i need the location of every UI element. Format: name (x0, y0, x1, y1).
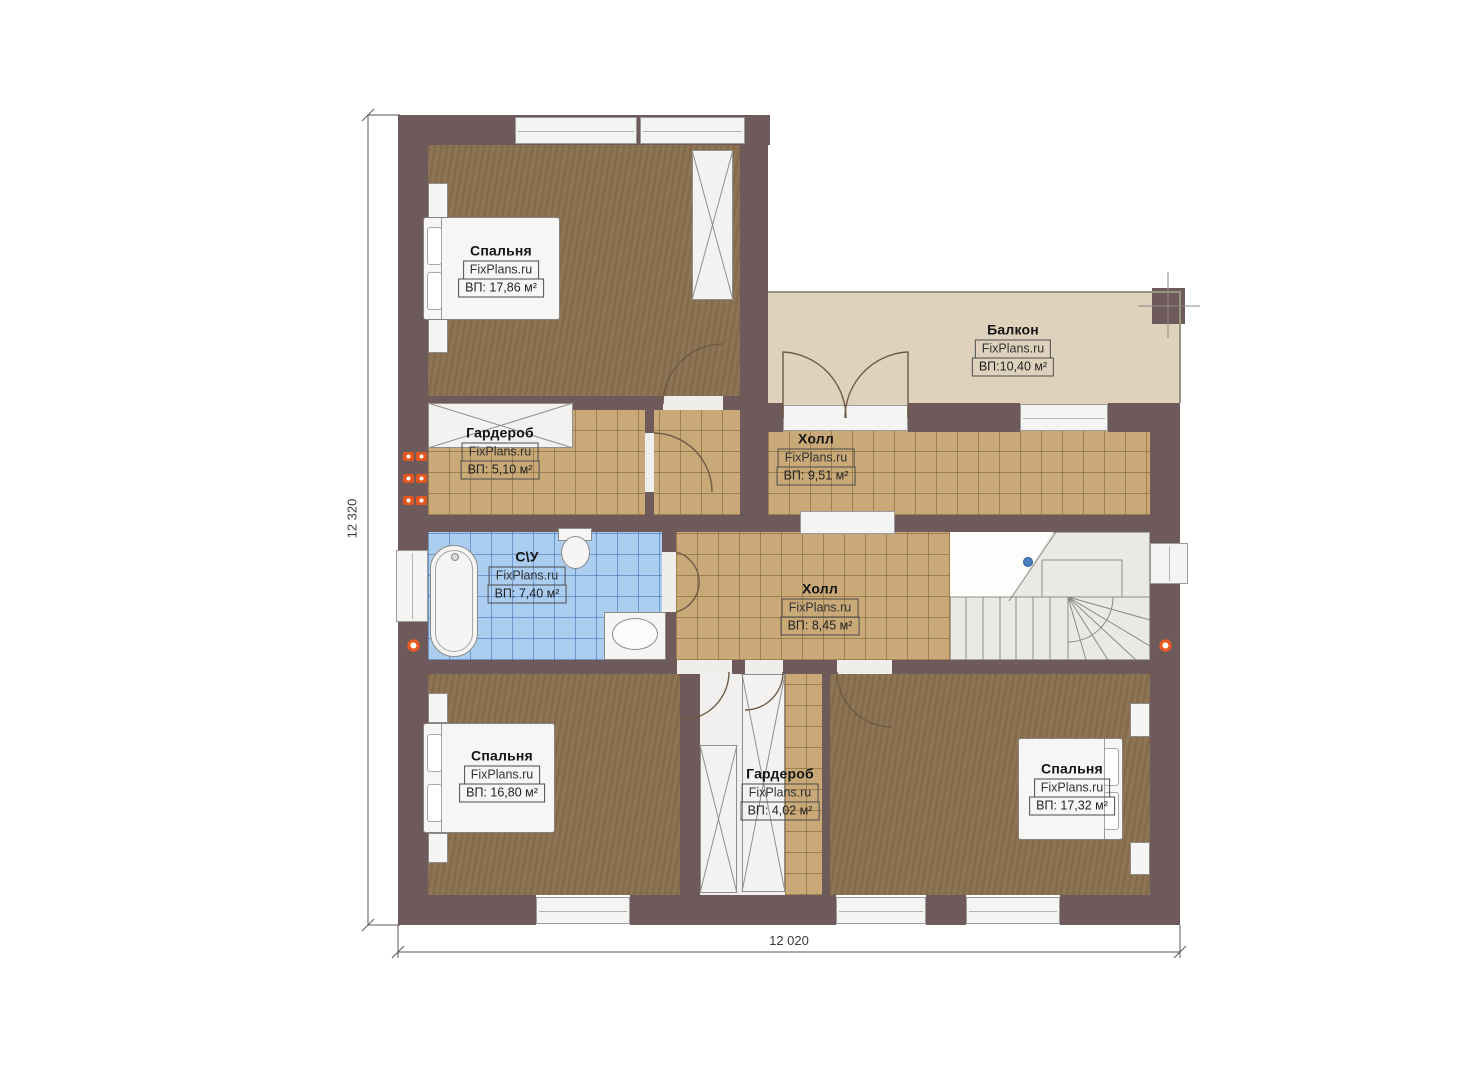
wall-mid2-d (892, 660, 1150, 674)
dimension-left: 12 320 (345, 479, 360, 559)
pillow (427, 734, 442, 772)
room-brand: FixPlans.ru (782, 599, 859, 618)
room-name: Спальня (1041, 761, 1103, 777)
wall-bath-hall-a (662, 532, 676, 552)
room-label-wardrobe-top: Гардероб FixPlans.ru ВП: 5,10 м² (461, 425, 540, 480)
window-balcony (1020, 404, 1108, 431)
window-left-bathroom (396, 550, 428, 622)
wall-bottom-c (926, 895, 966, 925)
staircase (950, 532, 1150, 660)
room-area: ВП:10,40 м² (972, 358, 1054, 377)
wall-bl-wardrobe (680, 674, 700, 895)
radiator-icon (416, 452, 427, 461)
door-threshold-bathroom (662, 552, 676, 612)
nightstand-br-2 (1130, 842, 1150, 875)
floor-plan: Спальня FixPlans.ru ВП: 17,86 м² Балкон … (0, 0, 1474, 1080)
bathtub (430, 545, 478, 657)
room-brand: FixPlans.ru (778, 449, 855, 468)
room-name: Гардероб (466, 425, 534, 441)
window-right-stairs (1150, 543, 1188, 584)
wall-mid2-c (783, 660, 837, 674)
radiator-icon (416, 496, 427, 505)
room-brand: FixPlans.ru (462, 443, 539, 462)
nightstand-br-1 (1130, 703, 1150, 737)
bathtub-tap (451, 553, 459, 561)
wall-balcony-b (908, 403, 1020, 432)
room-name: Холл (802, 581, 838, 597)
wall-wing-right (740, 115, 768, 515)
room-brand: FixPlans.ru (489, 567, 566, 586)
room-name: Спальня (471, 748, 533, 764)
radiator-icon (403, 496, 414, 505)
room-name: Спальня (470, 243, 532, 259)
wall-mid1-a (428, 515, 800, 532)
room-name: Гардероб (746, 766, 814, 782)
room-label-balcony: Балкон FixPlans.ru ВП:10,40 м² (972, 322, 1054, 377)
wall-mid2-b (732, 660, 745, 674)
pillow (427, 272, 442, 310)
room-name: Холл (798, 431, 834, 447)
door-threshold-wardrobe-bottom (745, 660, 783, 674)
room-label-hall-center: Холл FixPlans.ru ВП: 8,45 м² (781, 581, 860, 636)
wall-balcony-a (768, 403, 783, 432)
room-area: ВП: 7,40 м² (488, 585, 567, 604)
room-area: ВП: 5,10 м² (461, 461, 540, 480)
room-area: ВП: 17,32 м² (1029, 797, 1115, 816)
wall-mid2-a (428, 660, 677, 674)
room-label-hall-top: Холл FixPlans.ru ВП: 9,51 м² (777, 431, 856, 486)
door-threshold-bedroom1 (663, 396, 723, 410)
wall-bottom-b (630, 895, 836, 925)
sink-counter (604, 612, 666, 660)
window-bottom-2 (836, 897, 926, 924)
window-top-1 (515, 117, 637, 144)
door-threshold-bedroom-br (837, 660, 892, 674)
sink-basin (612, 618, 658, 650)
radiator-icon (416, 474, 427, 483)
window-bottom-3 (966, 897, 1060, 924)
radiator-icon (403, 474, 414, 483)
room-area: ВП: 16,80 м² (459, 784, 545, 803)
wardrobe-cabinet-bottom-1 (700, 745, 737, 893)
nightstand-bl-1 (428, 693, 448, 723)
hall-opening-sill (800, 511, 895, 534)
room-label-bedroom-top-left: Спальня FixPlans.ru ВП: 17,86 м² (458, 243, 544, 298)
room-brand: FixPlans.ru (463, 261, 540, 280)
wall-bedroom1-bottom-b (723, 396, 768, 410)
nightstand-bl-2 (428, 833, 448, 863)
balcony-corner-pillar (1152, 288, 1185, 324)
heating-dot-icon (406, 638, 421, 653)
heating-dot-icon (1158, 638, 1173, 653)
wall-bottom-d (1060, 895, 1180, 925)
room-label-wardrobe-bottom: Гардероб FixPlans.ru ВП: 4,02 м² (741, 766, 820, 821)
window-top-2 (640, 117, 745, 144)
room-brand: FixPlans.ru (975, 340, 1052, 359)
bathtub-inner (435, 550, 473, 652)
room-area: ВП: 17,86 м² (458, 279, 544, 298)
room-brand: FixPlans.ru (464, 766, 541, 785)
wall-wardrobe-top-b (645, 492, 654, 515)
wardrobe-cabinet-bedroom1 (692, 150, 733, 300)
room-area: ВП: 4,02 м² (741, 802, 820, 821)
wall-wardrobe-top-a (645, 410, 654, 433)
door-threshold-wardrobe-top (645, 433, 654, 492)
room-label-bedroom-bottom-left: Спальня FixPlans.ru ВП: 16,80 м² (459, 748, 545, 803)
room-area: ВП: 9,51 м² (777, 467, 856, 486)
pillow (427, 784, 442, 822)
wall-bottom-a (398, 895, 536, 925)
room-label-bedroom-bottom-right: Спальня FixPlans.ru ВП: 17,32 м² (1029, 761, 1115, 816)
wall-wardrobe-br (822, 674, 830, 895)
room-name: С\У (515, 549, 538, 565)
radiator-icon (403, 452, 414, 461)
room-name: Балкон (987, 322, 1039, 338)
pillow (427, 227, 442, 265)
window-bottom-1 (536, 897, 630, 924)
wall-right-exterior (1150, 420, 1180, 925)
room-area: ВП: 8,45 м² (781, 617, 860, 636)
door-threshold-bedroom-bl (677, 660, 732, 674)
wall-mid1-b (895, 515, 1150, 532)
balcony-door-opening (783, 405, 908, 431)
room-brand: FixPlans.ru (1034, 779, 1111, 798)
room-brand: FixPlans.ru (742, 784, 819, 803)
dimension-bottom: 12 020 (749, 933, 829, 948)
room-label-bathroom: С\У FixPlans.ru ВП: 7,40 м² (488, 549, 567, 604)
